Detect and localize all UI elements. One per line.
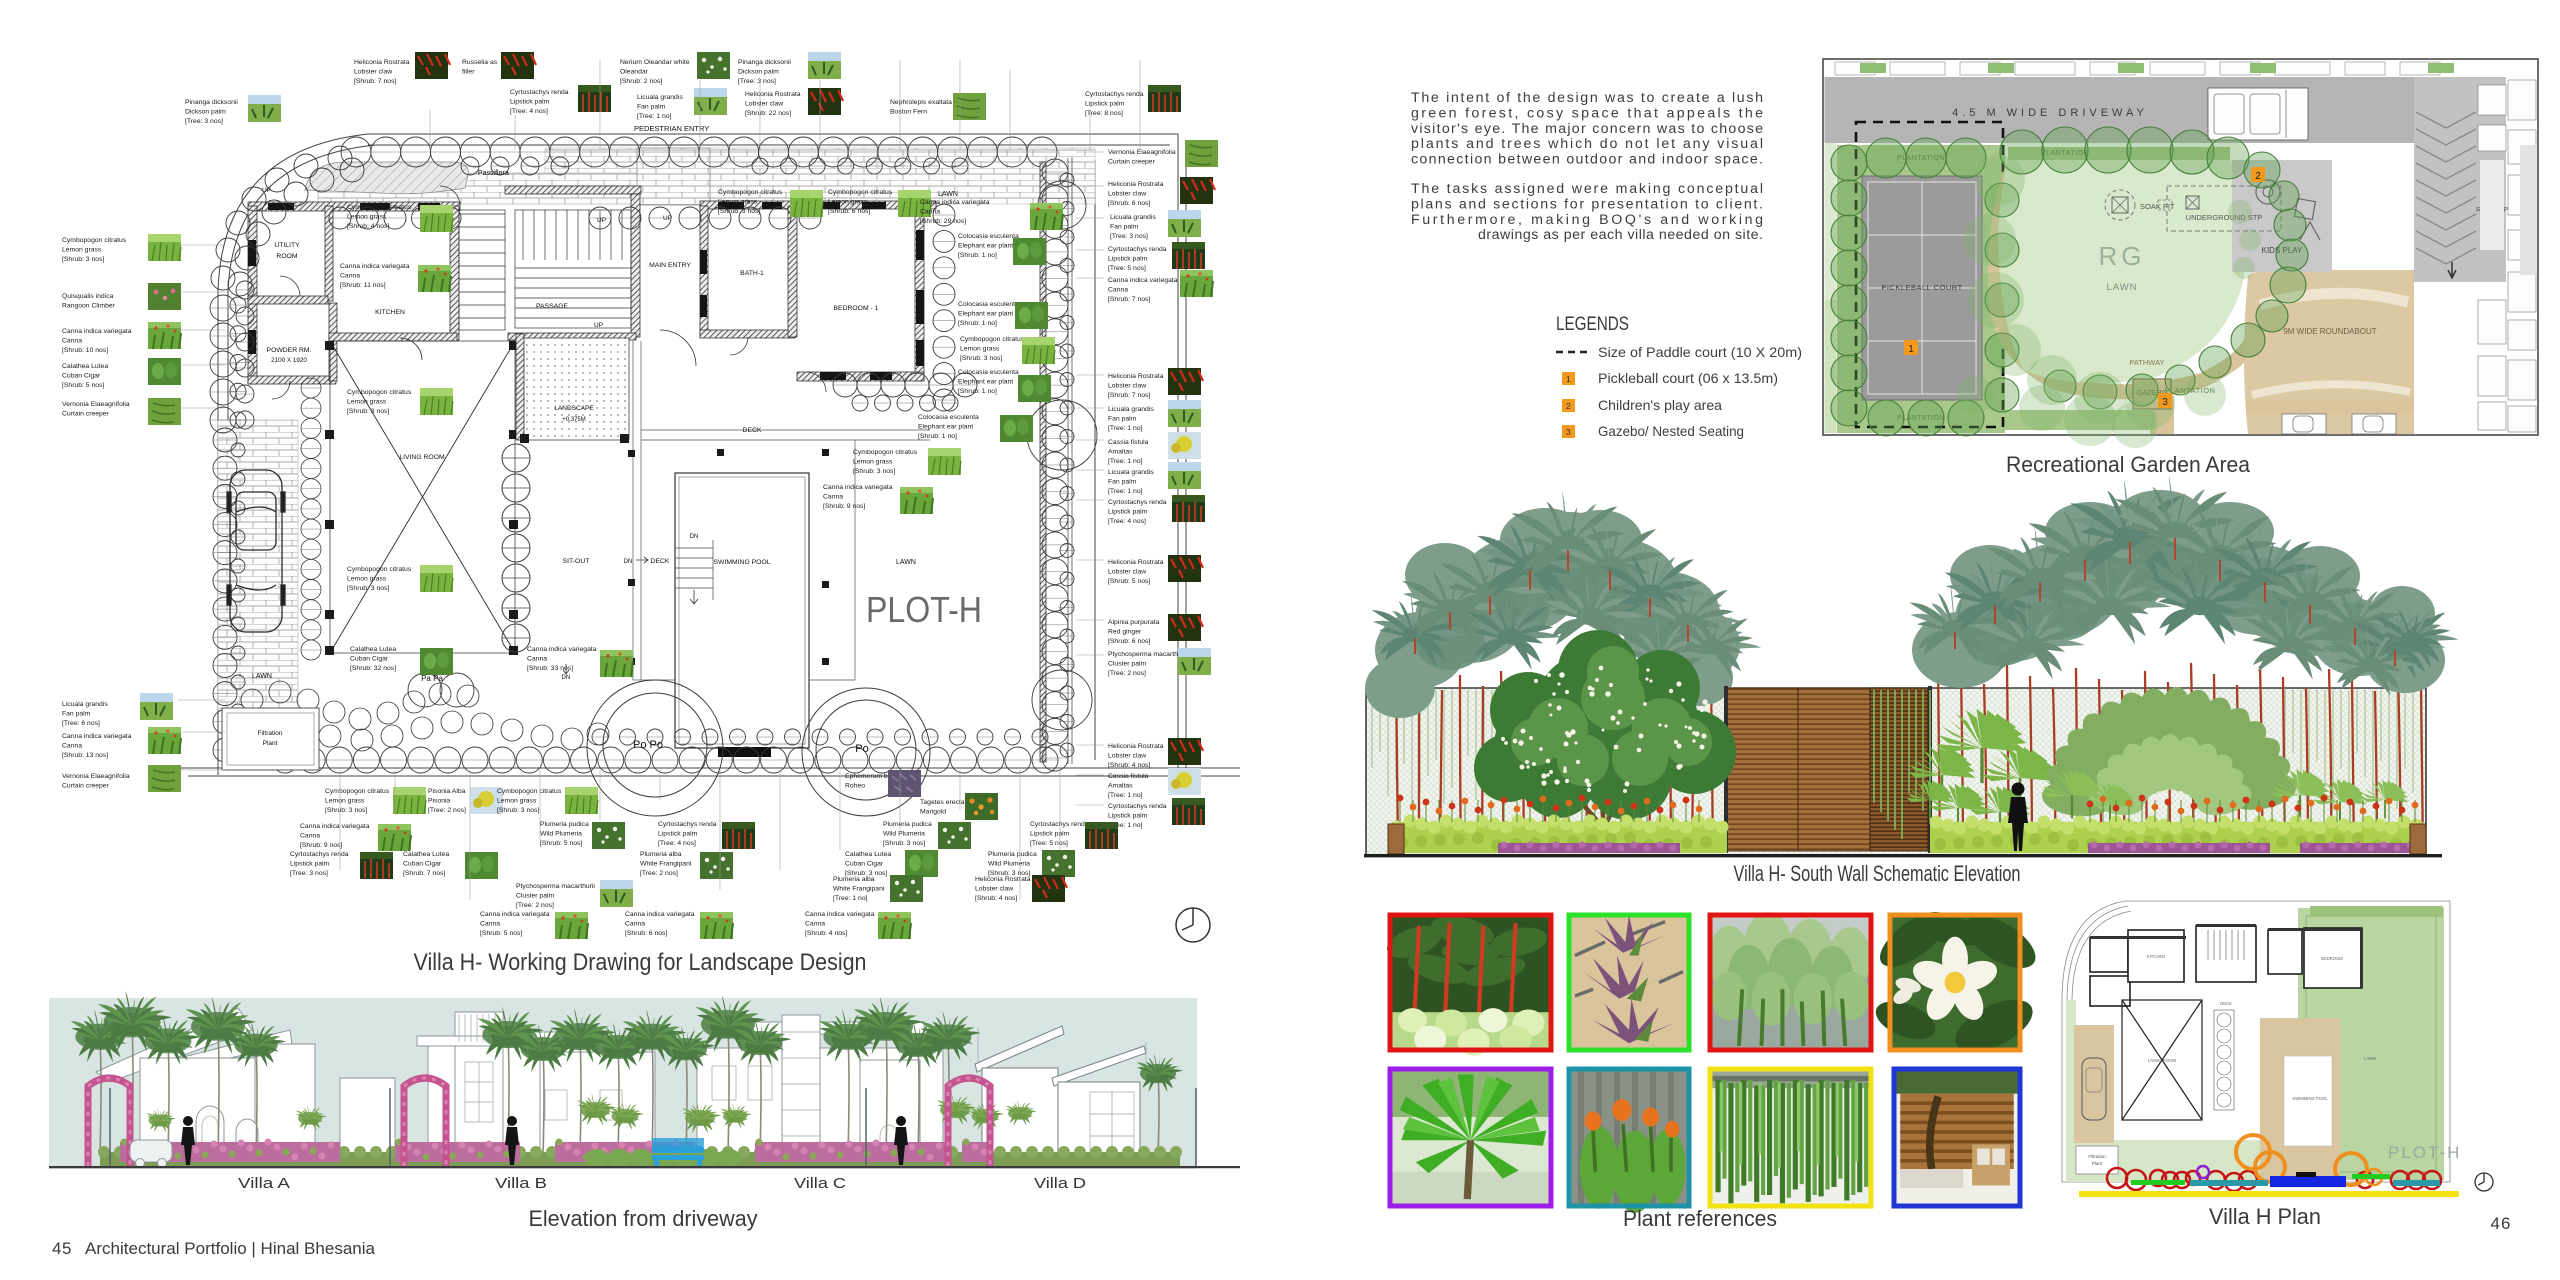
svg-text:Villa H- South Wall Schematic: Villa H- South Wall Schematic Elevation: [1734, 861, 2021, 886]
svg-text:Heliconia Rostrata: Heliconia Rostrata: [1108, 181, 1164, 188]
svg-text:Plant: Plant: [2092, 1161, 2103, 1166]
svg-text:Lipstick palm: Lipstick palm: [658, 831, 698, 838]
svg-text:46: 46: [2491, 1214, 2512, 1233]
svg-text:filler: filler: [462, 69, 475, 76]
svg-text:ROOM: ROOM: [276, 253, 297, 260]
svg-text:[Tree: 4 nos]: [Tree: 4 nos]: [1108, 518, 1146, 525]
svg-text:DN: DN: [562, 675, 571, 681]
svg-text:Po: Po: [855, 743, 868, 755]
svg-text:PLOT-H: PLOT-H: [866, 589, 982, 630]
svg-text:Gazebo/ Nested Seating: Gazebo/ Nested Seating: [1598, 423, 1744, 439]
svg-text:Villa H Plan: Villa H Plan: [2209, 1204, 2321, 1229]
svg-text:PATHWAY: PATHWAY: [2129, 358, 2164, 367]
svg-text:[Tree: 2 nos]: [Tree: 2 nos]: [1108, 670, 1146, 677]
svg-text:[Shrub: 4 nos]: [Shrub: 4 nos]: [347, 223, 389, 230]
svg-text:DN: DN: [690, 534, 699, 540]
svg-text:Dickson palm: Dickson palm: [738, 69, 779, 76]
svg-text:Curtain creeper: Curtain creeper: [62, 411, 110, 418]
svg-text:Marigold: Marigold: [920, 809, 946, 816]
svg-text:BEDROOM - 1: BEDROOM - 1: [834, 305, 879, 312]
svg-text:Cluster palm: Cluster palm: [1108, 661, 1146, 668]
svg-text:[Shrub: 4 nos]: [Shrub: 4 nos]: [975, 895, 1017, 902]
svg-text:Lipstick palm: Lipstick palm: [1108, 813, 1148, 820]
svg-text:[Shrub: 5 nos]: [Shrub: 5 nos]: [62, 382, 104, 389]
svg-text:Cassia fistula: Cassia fistula: [1108, 439, 1149, 446]
svg-text:Canna indica variegata: Canna indica variegata: [1108, 277, 1178, 284]
svg-text:Filtration: Filtration: [258, 730, 283, 737]
svg-text:[Shrub: 33 nos]: [Shrub: 33 nos]: [527, 665, 573, 672]
svg-text:[Shrub: 10 nos]: [Shrub: 10 nos]: [62, 347, 108, 354]
svg-text:Elephant ear plant: Elephant ear plant: [958, 243, 1013, 250]
svg-text:KITCHEN: KITCHEN: [375, 309, 405, 316]
svg-text:[Shrub: 29 nos]: [Shrub: 29 nos]: [920, 218, 966, 225]
svg-text:Dickson palm: Dickson palm: [185, 109, 226, 116]
svg-text:[Shrub: 13 nos]: [Shrub: 13 nos]: [62, 752, 108, 759]
svg-text:Canna indica variegata: Canna indica variegata: [62, 328, 132, 335]
svg-text:Heliconia Rostrata: Heliconia Rostrata: [1108, 559, 1164, 566]
svg-text:drawings as per each villa nee: drawings as per each villa needed on sit…: [1478, 227, 1763, 243]
svg-text:DECK: DECK: [2220, 1001, 2232, 1006]
svg-text:Wild Plumeria: Wild Plumeria: [988, 861, 1030, 868]
svg-text:Alpinia purpurata: Alpinia purpurata: [1108, 619, 1160, 626]
svg-text:[Shrub: 11 nos]: [Shrub: 11 nos]: [340, 282, 386, 289]
svg-text:visitor's eye. The major conce: visitor's eye. The major concern was to …: [1411, 121, 1763, 137]
svg-text:plans and sections for present: plans and sections for presentation to c…: [1411, 196, 1763, 212]
svg-text:[Shrub: 6 nos]: [Shrub: 6 nos]: [1108, 638, 1150, 645]
svg-text:Roheo: Roheo: [845, 783, 865, 790]
svg-text:Lemon grass: Lemon grass: [497, 798, 537, 805]
svg-text:Cyrtostachys renda: Cyrtostachys renda: [658, 821, 717, 828]
svg-text:Elevation from driveway: Elevation from driveway: [529, 1206, 758, 1231]
svg-text:Canna: Canna: [805, 921, 825, 928]
svg-text:DECK: DECK: [651, 558, 670, 565]
svg-text:[Shrub: 7 nos]: [Shrub: 7 nos]: [1108, 296, 1150, 303]
svg-text:Canna: Canna: [527, 656, 547, 663]
svg-text:Cymbopogon citratus: Cymbopogon citratus: [325, 788, 390, 795]
svg-text:SWIMMING POOL: SWIMMING POOL: [2292, 1096, 2328, 1101]
svg-text:[Shrub: 1 no]: [Shrub: 1 no]: [958, 320, 997, 327]
svg-text:[Tree: 2 nos]: [Tree: 2 nos]: [640, 870, 678, 877]
svg-text:[Shrub: 3 nos]: [Shrub: 3 nos]: [497, 807, 539, 814]
svg-text:[Shrub: 3 nos]: [Shrub: 3 nos]: [718, 208, 760, 215]
svg-text:2: 2: [1566, 401, 1571, 411]
svg-text:UTILITY: UTILITY: [274, 242, 300, 249]
svg-text:Calathea Lutea: Calathea Lutea: [403, 851, 449, 858]
svg-text:[Shrub: 9 nos]: [Shrub: 9 nos]: [300, 842, 342, 849]
svg-text:Filtration: Filtration: [2088, 1154, 2106, 1159]
svg-text:Lobster claw: Lobster claw: [1108, 383, 1146, 390]
svg-text:LEGENDS: LEGENDS: [1556, 314, 1629, 335]
svg-text:[Tree: 3 nos]: [Tree: 3 nos]: [185, 118, 223, 125]
svg-text:[Tree: 5 nos]: [Tree: 5 nos]: [1108, 265, 1146, 272]
svg-text:Lemon grass: Lemon grass: [347, 214, 387, 221]
svg-text:Licuala grandis: Licuala grandis: [1108, 406, 1154, 413]
svg-text:DN: DN: [624, 559, 633, 565]
svg-text:2: 2: [2255, 171, 2261, 182]
svg-text:Heliconia Rostrata: Heliconia Rostrata: [1108, 743, 1164, 750]
svg-text:Amaltas: Amaltas: [1108, 783, 1133, 790]
svg-text:[Shrub: 22 nos]: [Shrub: 22 nos]: [745, 110, 791, 117]
svg-text:Lobster claw: Lobster claw: [745, 101, 783, 108]
svg-text:Canna: Canna: [480, 921, 500, 928]
svg-text:Recreational Garden Area: Recreational Garden Area: [2006, 452, 2251, 477]
svg-text:BATH-1: BATH-1: [740, 270, 764, 277]
svg-text:[Shrub: 3 nos]: [Shrub: 3 nos]: [853, 468, 895, 475]
svg-text:Lipstick palm: Lipstick palm: [1085, 101, 1125, 108]
svg-text:Lipstick palm: Lipstick palm: [1030, 831, 1070, 838]
svg-text:Cluster palm: Cluster palm: [516, 893, 554, 900]
svg-text:Licuala grandis: Licuala grandis: [637, 94, 683, 101]
svg-text:PLOT-H: PLOT-H: [2388, 1143, 2461, 1162]
svg-text:LAWN: LAWN: [252, 673, 272, 680]
svg-text:1: 1: [1908, 344, 1914, 355]
svg-text:Plant: Plant: [263, 740, 278, 747]
svg-text:RG: RG: [2099, 241, 2146, 271]
svg-text:[Tree: 1 no]: [Tree: 1 no]: [1108, 458, 1143, 465]
svg-text:Lemon grass: Lemon grass: [718, 199, 758, 206]
svg-text:Cymbopogon citratus: Cymbopogon citratus: [347, 389, 412, 396]
svg-text:Oleandar: Oleandar: [620, 69, 649, 76]
svg-text:Colocasia esculenta: Colocasia esculenta: [918, 414, 979, 421]
svg-text:Villa H- Working Drawing for L: Villa H- Working Drawing for Landscape D…: [414, 949, 867, 976]
svg-text:Quisqualis indica: Quisqualis indica: [62, 293, 114, 300]
svg-text:Licuala grandis: Licuala grandis: [1108, 469, 1154, 476]
svg-text:Colocasia esculenta: Colocasia esculenta: [958, 301, 1019, 308]
svg-text:Pinanga dicksonii: Pinanga dicksonii: [738, 59, 791, 66]
svg-text:[Tree: 1 no]: [Tree: 1 no]: [1108, 425, 1143, 432]
svg-text:Plumeria alba: Plumeria alba: [640, 851, 682, 858]
svg-text:Lemon grass: Lemon grass: [828, 199, 868, 206]
svg-text:plants and trees which do not: plants and trees which do not let any vi…: [1411, 136, 1763, 152]
svg-text:Villa C: Villa C: [794, 1176, 846, 1192]
svg-text:MAIN ENTRY: MAIN ENTRY: [649, 262, 691, 269]
svg-text:[Tree: 1 no]: [Tree: 1 no]: [833, 895, 868, 902]
svg-text:Canna indica variegata: Canna indica variegata: [340, 263, 410, 270]
svg-text:Lobster claw: Lobster claw: [1108, 191, 1146, 198]
svg-text:[Shrub: 5 nos]: [Shrub: 5 nos]: [480, 930, 522, 937]
svg-text:[Shrub: 1 no]: [Shrub: 1 no]: [958, 388, 997, 395]
svg-text:[Shrub: 6 nos]: [Shrub: 6 nos]: [828, 208, 870, 215]
svg-text:Fan palm: Fan palm: [1110, 224, 1139, 231]
svg-text:Cyrtostachys renda: Cyrtostachys renda: [1030, 821, 1089, 828]
svg-text:UP: UP: [594, 322, 603, 329]
svg-text:Lipstick palm: Lipstick palm: [1108, 509, 1148, 516]
svg-text:Canna indica variegata: Canna indica variegata: [480, 911, 550, 918]
svg-text:Cuban Cigar: Cuban Cigar: [350, 656, 389, 663]
svg-text:Cymbopogon citratus: Cymbopogon citratus: [828, 189, 893, 196]
svg-text:Lipstick palm: Lipstick palm: [1108, 256, 1148, 263]
svg-text:Canna: Canna: [300, 833, 320, 840]
svg-text:Curtain creeper: Curtain creeper: [1108, 159, 1156, 166]
svg-text:UP: UP: [262, 187, 271, 194]
svg-text:[Shrub: 4 nos]: [Shrub: 4 nos]: [805, 930, 847, 937]
svg-text:Furthermore, making BOQ's and: Furthermore, making BOQ's and working: [1411, 212, 1763, 228]
svg-text:Cymbopogon citratus: Cymbopogon citratus: [62, 237, 127, 244]
svg-text:LAWN: LAWN: [896, 559, 916, 566]
svg-text:Plumeria pudica: Plumeria pudica: [540, 821, 589, 828]
svg-text:[Shrub: 3 nos]: [Shrub: 3 nos]: [347, 585, 389, 592]
svg-text:[Tree: 3 nos]: [Tree: 3 nos]: [1110, 233, 1148, 240]
svg-text:[Shrub: 6 nos]: [Shrub: 6 nos]: [1108, 200, 1150, 207]
svg-text:Licuala grandis: Licuala grandis: [1110, 214, 1156, 221]
svg-text:Fan palm: Fan palm: [1108, 479, 1137, 486]
svg-text:Heliconia Rostrata: Heliconia Rostrata: [975, 876, 1031, 883]
svg-text:Heliconia Rostrata: Heliconia Rostrata: [354, 59, 410, 66]
svg-text:Cyrtostachys renda: Cyrtostachys renda: [1108, 499, 1167, 506]
svg-text:Lemon grass: Lemon grass: [347, 576, 387, 583]
svg-text:Amaltas: Amaltas: [1108, 449, 1133, 456]
svg-text:Canna: Canna: [340, 273, 360, 280]
svg-text:[Shrub: 32 nos]: [Shrub: 32 nos]: [350, 665, 396, 672]
svg-text:Vernonia Elaeagnifolia: Vernonia Elaeagnifolia: [1108, 149, 1176, 156]
svg-text:SWIMMING POOL: SWIMMING POOL: [713, 559, 770, 566]
svg-text:Nephrolepis exaltata: Nephrolepis exaltata: [890, 99, 952, 106]
svg-text:Cymbopogon citratus: Cymbopogon citratus: [853, 449, 918, 456]
svg-text:Russelia as: Russelia as: [462, 59, 498, 66]
svg-text:BEDROOM: BEDROOM: [2321, 956, 2343, 961]
svg-text:Curtain creeper: Curtain creeper: [62, 783, 110, 790]
svg-text:1: 1: [1566, 374, 1571, 384]
svg-text:[Shrub: 3 nos]: [Shrub: 3 nos]: [62, 256, 104, 263]
svg-text:Plumeria pudica: Plumeria pudica: [988, 851, 1037, 858]
svg-text:Plumeria pudica: Plumeria pudica: [883, 821, 932, 828]
svg-text:POWDER RM.: POWDER RM.: [267, 347, 312, 354]
svg-text:Lemon grass: Lemon grass: [853, 459, 893, 466]
svg-text:Canna indica variegata: Canna indica variegata: [920, 199, 990, 206]
svg-text:PEDESTRIAN ENTRY: PEDESTRIAN ENTRY: [634, 124, 709, 133]
svg-text:LIVING ROOM: LIVING ROOM: [399, 454, 445, 461]
svg-text:Fan palm: Fan palm: [1108, 416, 1137, 423]
svg-text:[Shrub: 1 no]: [Shrub: 1 no]: [918, 433, 957, 440]
svg-text:Lobster claw: Lobster claw: [1108, 569, 1146, 576]
svg-text:Rangoon Climber: Rangoon Climber: [62, 303, 116, 310]
svg-text:Canna: Canna: [62, 338, 82, 345]
svg-text:Plumeria alba: Plumeria alba: [833, 876, 875, 883]
svg-text:Villa A: Villa A: [238, 1176, 290, 1192]
svg-text:Ptychosperma macarthurii: Ptychosperma macarthurii: [1108, 651, 1187, 658]
svg-text:[Shrub: 5 nos]: [Shrub: 5 nos]: [1108, 578, 1150, 585]
svg-text:Elephant ear plant: Elephant ear plant: [958, 311, 1013, 318]
svg-text:Wild Plumeria: Wild Plumeria: [883, 831, 925, 838]
svg-text:Lemon grass: Lemon grass: [62, 247, 102, 254]
svg-text:Nerium Oleandar white: Nerium Oleandar white: [620, 59, 690, 66]
svg-text:Colocasia esculenta: Colocasia esculenta: [958, 233, 1019, 240]
svg-text:SIT-OUT: SIT-OUT: [563, 558, 590, 565]
svg-text:Calathea Lutea: Calathea Lutea: [845, 851, 891, 858]
svg-text:Boston Fern: Boston Fern: [890, 109, 927, 116]
svg-text:Red ginger: Red ginger: [1108, 629, 1142, 636]
svg-text:The intent of the design was t: The intent of the design was to create a…: [1411, 90, 1763, 106]
svg-text:Lipstick palm: Lipstick palm: [290, 861, 330, 868]
svg-text:Cymbopogon citratus: Cymbopogon citratus: [347, 204, 412, 211]
svg-text:Calathea Lutea: Calathea Lutea: [350, 646, 396, 653]
svg-text:Cyrtostachys renda: Cyrtostachys renda: [510, 89, 569, 96]
svg-text:Colocasia esculenta: Colocasia esculenta: [958, 369, 1019, 376]
svg-text:LIVING ROOM: LIVING ROOM: [2148, 1058, 2176, 1063]
svg-text:[Shrub: 3 nos]: [Shrub: 3 nos]: [960, 355, 1002, 362]
svg-text:Cymbopogon citratus: Cymbopogon citratus: [718, 189, 783, 196]
svg-text:LAWN: LAWN: [938, 191, 958, 198]
svg-text:Cyrtostachys renda: Cyrtostachys renda: [1108, 246, 1167, 253]
svg-text:Cuban Cigar: Cuban Cigar: [62, 373, 101, 380]
svg-text:[Shrub: 2 nos]: [Shrub: 2 nos]: [620, 78, 662, 85]
svg-text:Lemon grass: Lemon grass: [347, 399, 387, 406]
svg-text:PASSAGE: PASSAGE: [536, 303, 568, 310]
svg-text:Cyrtostachys renda: Cyrtostachys renda: [1108, 803, 1167, 810]
svg-text:Vernonia Elaeagnifolia: Vernonia Elaeagnifolia: [62, 773, 130, 780]
svg-text:Cassia fistula: Cassia fistula: [1108, 773, 1149, 780]
svg-text:[Tree: 1 no]: [Tree: 1 no]: [1108, 792, 1143, 799]
svg-text:[Tree: 4 nos]: [Tree: 4 nos]: [510, 108, 548, 115]
svg-text:9M WIDE ROUNDABOUT: 9M WIDE ROUNDABOUT: [2283, 327, 2376, 336]
svg-text:3: 3: [2162, 397, 2168, 408]
svg-text:Licuala grandis: Licuala grandis: [62, 701, 108, 708]
svg-text:White Frangipani: White Frangipani: [833, 886, 885, 893]
svg-text:[Shrub: 7 nos]: [Shrub: 7 nos]: [1108, 392, 1150, 399]
svg-text:Lemon grass: Lemon grass: [960, 346, 1000, 353]
svg-text:White Frangipani: White Frangipani: [640, 861, 692, 868]
svg-text:[Tree: 4 nos]: [Tree: 4 nos]: [658, 840, 696, 847]
svg-text:green forest, cosy space that: green forest, cosy space that appeals th…: [1411, 105, 1763, 121]
svg-text:Lemon grass: Lemon grass: [325, 798, 365, 805]
svg-text:Size of Paddle court (10 X 20m: Size of Paddle court (10 X 20m): [1598, 344, 1802, 360]
svg-text:KITCHEN: KITCHEN: [2147, 954, 2165, 959]
svg-text:Elephant ear plant: Elephant ear plant: [918, 424, 973, 431]
svg-text:+0.375M: +0.375M: [562, 417, 586, 423]
svg-text:The tasks assigned were making: The tasks assigned were making conceptua…: [1411, 181, 1763, 197]
svg-text:[Tree: 2 nos]: [Tree: 2 nos]: [428, 807, 466, 814]
svg-text:Wild Plumeria: Wild Plumeria: [540, 831, 582, 838]
svg-text:Fan palm: Fan palm: [637, 104, 666, 111]
svg-text:Cuban Cigar: Cuban Cigar: [845, 861, 884, 868]
svg-text:Cuban Cigar: Cuban Cigar: [403, 861, 442, 868]
svg-text:[Tree: 2 nos]: [Tree: 2 nos]: [516, 902, 554, 909]
svg-text:Canna indica variegata: Canna indica variegata: [300, 823, 370, 830]
svg-text:LAWN: LAWN: [2364, 1056, 2376, 1061]
svg-text:Villa D: Villa D: [1034, 1176, 1086, 1192]
svg-text:Canna: Canna: [625, 921, 645, 928]
svg-text:Pinanga dicksonii: Pinanga dicksonii: [185, 99, 238, 106]
svg-text:[Tree: 3 nos]: [Tree: 3 nos]: [290, 870, 328, 877]
svg-text:[Tree: 1 no]: [Tree: 1 no]: [637, 113, 672, 120]
svg-text:Canna: Canna: [62, 743, 82, 750]
svg-text:Canna indica variegata: Canna indica variegata: [527, 646, 597, 653]
svg-text:[Shrub: 4 nos]: [Shrub: 4 nos]: [1108, 762, 1150, 769]
svg-text:[Shrub: 6 nos]: [Shrub: 6 nos]: [625, 930, 667, 937]
svg-text:4.5 M WIDE DRIVEWAY: 4.5 M WIDE DRIVEWAY: [1952, 107, 2148, 119]
svg-text:Canna: Canna: [1108, 287, 1128, 294]
svg-text:Cyrtostachys renda: Cyrtostachys renda: [1085, 91, 1144, 98]
svg-text:Vernonia Elaeagnifolia: Vernonia Elaeagnifolia: [62, 401, 130, 408]
svg-text:Canna: Canna: [920, 209, 940, 216]
svg-text:Tagetes erecta: Tagetes erecta: [920, 799, 965, 806]
svg-text:Lobster claw: Lobster claw: [1108, 753, 1146, 760]
svg-text:Pisonia Alba: Pisonia Alba: [428, 788, 466, 795]
svg-text:Canna indica variegata: Canna indica variegata: [823, 484, 893, 491]
svg-text:[Shrub: 9 nos]: [Shrub: 9 nos]: [823, 503, 865, 510]
svg-text:Children's play area: Children's play area: [1598, 397, 1722, 413]
svg-text:DECK: DECK: [743, 427, 762, 434]
svg-text:Po Po: Po Po: [633, 739, 663, 751]
svg-text:[Shrub: 3 nos]: [Shrub: 3 nos]: [325, 807, 367, 814]
svg-text:LAWN: LAWN: [2106, 282, 2137, 293]
svg-text:[Tree: 5 nos]: [Tree: 5 nos]: [1030, 840, 1068, 847]
svg-text:[Tree: 8 nos]: [Tree: 8 nos]: [1085, 110, 1123, 117]
svg-text:Calathea Lutea: Calathea Lutea: [62, 363, 108, 370]
svg-text:[Tree: 1 no]: [Tree: 1 no]: [1108, 488, 1143, 495]
svg-text:Lobster claw: Lobster claw: [354, 69, 392, 76]
svg-text:Architectural Portfolio | Hina: Architectural Portfolio | Hinal Bhesania: [85, 1239, 376, 1258]
svg-text:3: 3: [1566, 427, 1571, 437]
svg-text:Villa B: Villa B: [495, 1176, 547, 1192]
svg-text:Canna indica variegata: Canna indica variegata: [805, 911, 875, 918]
svg-text:[Shrub: 7 nos]: [Shrub: 7 nos]: [354, 78, 396, 85]
svg-text:Lobster claw: Lobster claw: [975, 886, 1013, 893]
svg-text:Heliconia Rostrata: Heliconia Rostrata: [745, 91, 801, 98]
svg-text:[Tree: 6 nos]: [Tree: 6 nos]: [62, 720, 100, 727]
svg-text:Pa Pa: Pa Pa: [421, 674, 443, 683]
svg-text:Canna indica variegata: Canna indica variegata: [62, 733, 132, 740]
svg-text:[Shrub: 1 no]: [Shrub: 1 no]: [958, 252, 997, 259]
svg-text:Pisonia: Pisonia: [428, 798, 451, 805]
svg-text:Fan palm: Fan palm: [62, 711, 91, 718]
svg-text:Pickleball court (06 x 13.5m): Pickleball court (06 x 13.5m): [1598, 370, 1778, 386]
svg-text:PICKLEBALL COURT: PICKLEBALL COURT: [1881, 283, 1962, 292]
svg-text:Canna indica variegata: Canna indica variegata: [625, 911, 695, 918]
svg-text:[Tree: 3 nos]: [Tree: 3 nos]: [738, 78, 776, 85]
svg-text:[Shrub: 3 nos]: [Shrub: 3 nos]: [883, 840, 925, 847]
svg-text:[Shrub: 5 nos]: [Shrub: 5 nos]: [540, 840, 582, 847]
svg-text:LANDSCAPE: LANDSCAPE: [554, 405, 594, 412]
svg-text:2100 X 1920: 2100 X 1920: [271, 357, 307, 364]
svg-text:Plant references: Plant references: [1623, 1206, 1777, 1231]
svg-text:[Shrub: 7 nos]: [Shrub: 7 nos]: [403, 870, 445, 877]
svg-text:Canna: Canna: [823, 494, 843, 501]
svg-text:[Shrub: 3 nos]: [Shrub: 3 nos]: [347, 408, 389, 415]
svg-text:Cymbopogon citratus: Cymbopogon citratus: [960, 336, 1025, 343]
svg-text:Heliconia Rostrata: Heliconia Rostrata: [1108, 373, 1164, 380]
svg-text:45: 45: [52, 1239, 72, 1258]
svg-text:Cymbopogon citratus: Cymbopogon citratus: [497, 788, 562, 795]
svg-text:Elephant ear plant: Elephant ear plant: [958, 379, 1013, 386]
svg-text:Ptychosperma macarthurii: Ptychosperma macarthurii: [516, 883, 595, 890]
svg-text:Lipstick palm: Lipstick palm: [510, 99, 550, 106]
svg-text:connection between outdoor and: connection between outdoor and indoor sp…: [1411, 152, 1763, 168]
svg-text:Cymbopogon citratus: Cymbopogon citratus: [347, 566, 412, 573]
